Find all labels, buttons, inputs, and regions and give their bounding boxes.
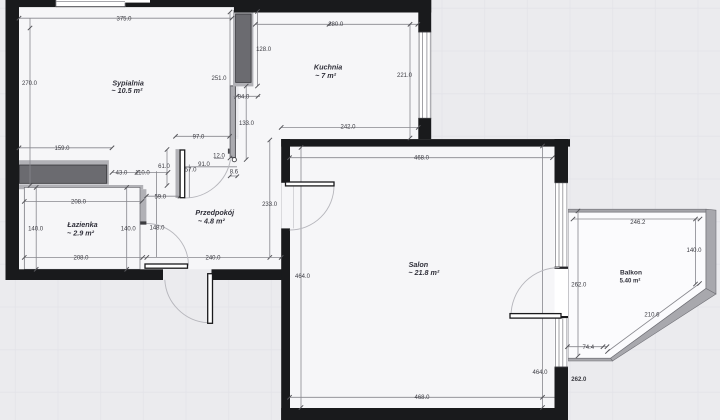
svg-text:43.0: 43.0: [116, 170, 128, 176]
svg-text:221.0: 221.0: [397, 73, 413, 79]
svg-text:208.0: 208.0: [73, 256, 89, 262]
svg-text:~ 2.9 m²: ~ 2.9 m²: [67, 229, 95, 238]
svg-text:Łazienka: Łazienka: [66, 220, 97, 229]
svg-text:91.0: 91.0: [198, 162, 210, 168]
svg-text:~ 7 m²: ~ 7 m²: [315, 71, 337, 80]
svg-text:159.0: 159.0: [54, 146, 70, 152]
svg-text:464.0: 464.0: [532, 370, 548, 376]
svg-text:140.0: 140.0: [686, 248, 702, 254]
svg-text:140.0: 140.0: [121, 227, 137, 233]
svg-text:148.0: 148.0: [149, 225, 165, 231]
svg-text:97.0: 97.0: [193, 135, 205, 141]
svg-text:133.0: 133.0: [239, 121, 255, 127]
svg-text:270.0: 270.0: [22, 81, 38, 87]
svg-text:262.0: 262.0: [571, 282, 587, 288]
svg-text:464.0: 464.0: [295, 274, 311, 280]
svg-text:208.0: 208.0: [71, 200, 87, 206]
svg-text:240.0: 240.0: [205, 256, 221, 262]
svg-text:468.0: 468.0: [414, 156, 430, 162]
svg-text:57.0: 57.0: [185, 168, 197, 174]
svg-text:~ 21.8 m²: ~ 21.8 m²: [408, 268, 440, 277]
svg-text:262.0: 262.0: [571, 377, 587, 383]
svg-text:468.0: 468.0: [414, 395, 430, 401]
svg-text:375.0: 375.0: [116, 17, 132, 23]
svg-text:128.0: 128.0: [256, 47, 272, 53]
svg-text:280.0: 280.0: [328, 22, 344, 28]
svg-text:251.0: 251.0: [211, 76, 227, 82]
svg-text:233.0: 233.0: [262, 202, 278, 208]
svg-text:110.0: 110.0: [135, 170, 150, 176]
svg-text:210.6: 210.6: [644, 313, 660, 319]
svg-text:74.4: 74.4: [582, 345, 594, 351]
svg-text:Kuchnia: Kuchnia: [314, 62, 342, 71]
svg-text:61.0: 61.0: [158, 164, 170, 170]
svg-text:84.0: 84.0: [238, 94, 250, 100]
svg-text:Balkon: Balkon: [620, 269, 642, 276]
svg-text:~ 4.8 m²: ~ 4.8 m²: [198, 217, 226, 226]
svg-text:12.0: 12.0: [213, 154, 225, 160]
svg-text:~ 10.5 m²: ~ 10.5 m²: [111, 86, 143, 95]
svg-text:5.40 m²: 5.40 m²: [620, 278, 641, 285]
svg-text:59.0: 59.0: [154, 194, 166, 200]
svg-text:140.0: 140.0: [28, 227, 44, 233]
svg-text:242.0: 242.0: [340, 125, 356, 131]
svg-text:246.2: 246.2: [630, 220, 646, 226]
